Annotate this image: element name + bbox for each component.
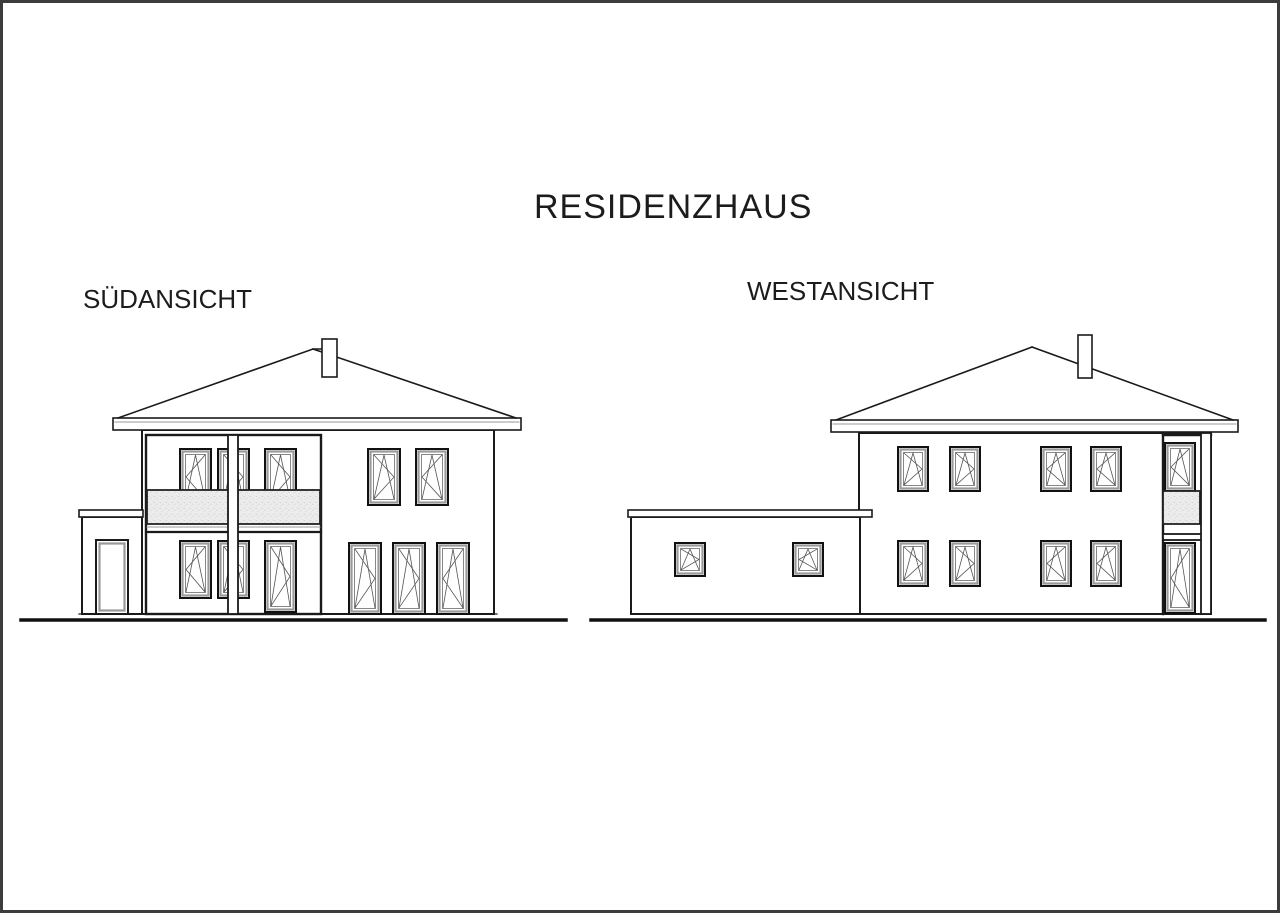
south-roof-left-slope [118,349,325,418]
window [416,449,448,505]
south-eave-band [113,418,521,430]
window [898,541,928,586]
south-annex-door-frame [100,544,125,611]
west-garage-roof-cap [628,510,872,517]
window [368,449,400,505]
west-elevation [591,335,1265,620]
window [180,541,211,598]
window [437,543,469,614]
west-chimney [1078,335,1092,378]
south-chimney [322,339,337,377]
window [675,543,705,576]
window [1165,443,1195,491]
south-elevation [21,339,566,620]
window [1041,541,1071,586]
window [950,541,980,586]
window [1091,541,1121,586]
south-roof-right-slope [313,349,516,418]
west-eave-band [831,420,1238,432]
window [950,447,980,491]
elevation-drawing [3,3,1280,913]
window [1091,447,1121,491]
window [793,543,823,576]
window [1041,447,1071,491]
west-roof-left-slope [836,347,1032,420]
west-corner-post [1201,433,1211,614]
west-roof-right-slope [1032,347,1233,420]
window [349,543,381,614]
drawing-sheet: RESIDENZHAUS SÜDANSICHT WESTANSICHT [0,0,1280,913]
west-balcony-parapet [1163,491,1200,524]
window [1165,543,1195,613]
window [898,447,928,491]
south-annex-roof-cap [79,510,143,517]
window [265,541,296,612]
window [393,543,425,614]
south-loggia-post [228,435,238,614]
west-garage-wall [631,517,860,614]
